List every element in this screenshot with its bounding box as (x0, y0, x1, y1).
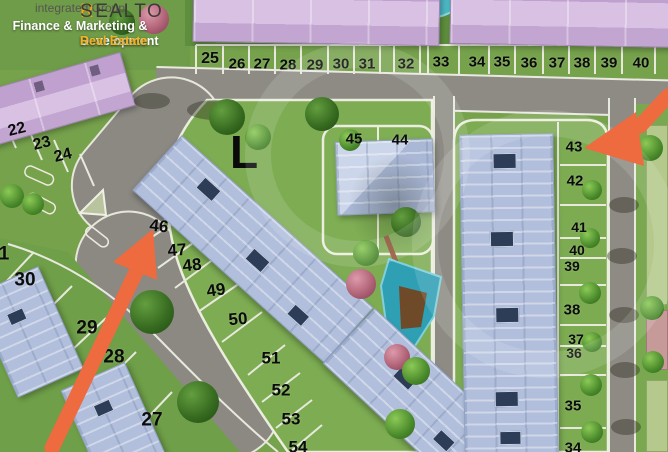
tree (346, 269, 376, 299)
palm-tree (579, 282, 601, 304)
brand-name-post: S (80, 1, 94, 23)
tree (22, 193, 44, 215)
palm-shadow (611, 419, 641, 435)
palm-tree (582, 180, 602, 200)
palm-tree (305, 97, 339, 131)
tree (353, 240, 379, 266)
top-strip-dividers (196, 45, 662, 74)
building-row-25-32 (192, 0, 440, 46)
palm-shadow (609, 307, 639, 323)
palm-shadow (607, 248, 637, 264)
palm-shadow (609, 197, 639, 213)
masterplan-map: 2526272829303132333435363738394022232413… (0, 0, 668, 452)
brand-logo: REALTORS integrated Group Finance & Mark… (0, 1, 160, 71)
building-row-33-40 (449, 0, 668, 48)
brand-tagline-2-accent: Real Estate (80, 35, 147, 48)
tree (385, 409, 415, 439)
palm-tree (391, 207, 421, 237)
building-right-edge-3 (646, 380, 668, 452)
palm-tree (581, 421, 603, 443)
palm-tree (580, 228, 600, 248)
palm-shadow (134, 93, 170, 109)
traffic-island (80, 190, 106, 215)
palm-tree (582, 332, 602, 352)
palm-tree (580, 374, 602, 396)
tree (402, 357, 430, 385)
palm-shadow (610, 362, 640, 378)
tree (177, 381, 219, 423)
building-right-vertical (459, 133, 559, 452)
tree (0, 184, 24, 208)
tree (339, 129, 361, 151)
tree-shadow (330, 135, 460, 275)
palm-tree (637, 135, 663, 161)
tree (130, 290, 174, 334)
zone-letter: L (230, 129, 258, 175)
palm-tree (640, 296, 664, 320)
palm-tree (642, 351, 664, 373)
